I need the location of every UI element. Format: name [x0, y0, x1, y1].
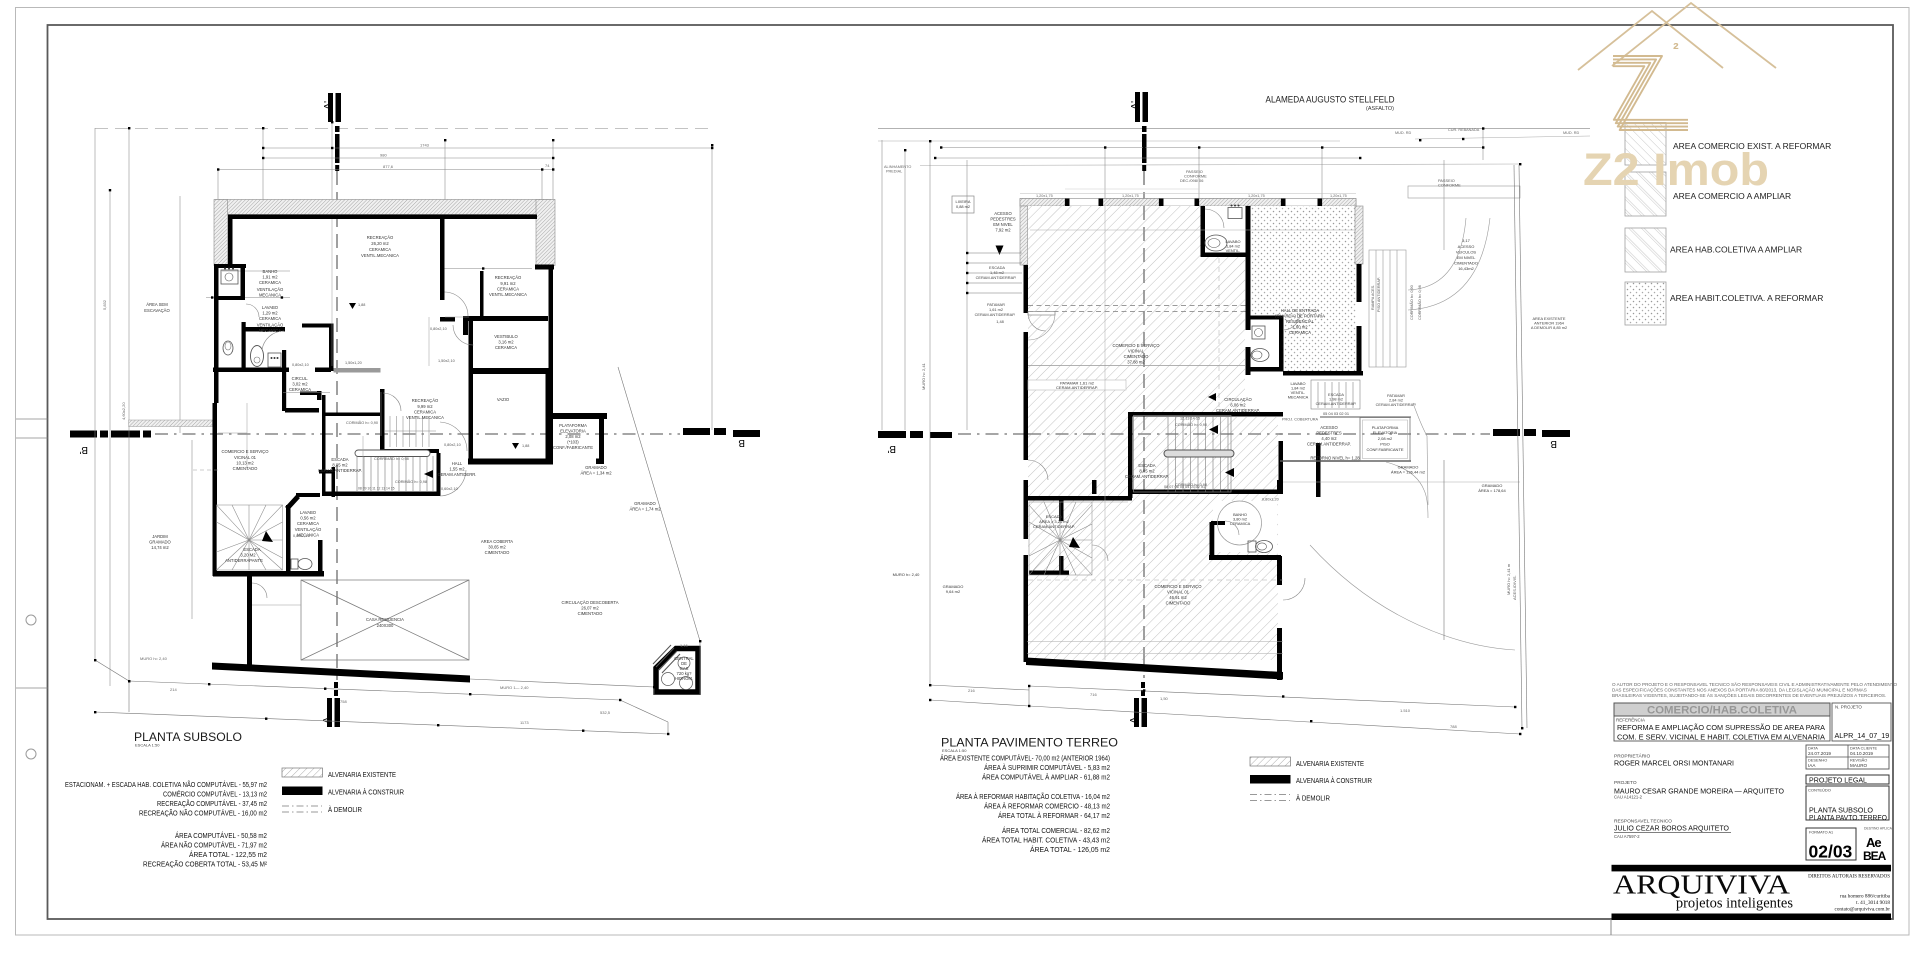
svg-text:B': B'	[887, 443, 896, 454]
svg-text:VENTIL.MECANICA: VENTIL.MECANICA	[406, 415, 444, 420]
svg-text:Z2 Imob: Z2 Imob	[1583, 144, 1769, 195]
svg-text:HIDROM.: HIDROM.	[675, 676, 693, 681]
svg-text:1,88: 1,88	[358, 303, 365, 307]
svg-text:0,56 m2: 0,56 m2	[300, 516, 316, 521]
svg-text:À DEMOLIR: À DEMOLIR	[328, 805, 362, 814]
svg-text:ALVENARIA À CONSTRUIR: ALVENARIA À CONSTRUIR	[328, 788, 404, 797]
svg-text:VENTIL.: VENTIL.	[1226, 248, 1241, 253]
svg-text:REVISÃO: REVISÃO	[1850, 758, 1867, 763]
svg-text:CIMENTADO: CIMENTADO	[485, 550, 511, 555]
svg-text:ACESSO: ACESSO	[994, 211, 1012, 216]
svg-text:980: 980	[380, 153, 387, 158]
svg-text:GRAMADO: GRAMADO	[634, 501, 656, 506]
svg-text:26,07 m2: 26,07 m2	[581, 606, 599, 611]
svg-text:JULIO CEZAR BOROS ARQUITETO: JULIO CEZAR BOROS ARQUITETO	[1614, 824, 1729, 833]
svg-text:CIRCULAÇÃO: CIRCULAÇÃO	[1224, 397, 1252, 402]
svg-text:CERAM.ANTIDERRAP.: CERAM.ANTIDERRAP.	[1033, 524, 1075, 529]
svg-text:1,50x1,20: 1,50x1,20	[345, 361, 362, 365]
svg-text:ESCAVAÇÃO: ESCAVAÇÃO	[144, 308, 170, 313]
svg-text:1,91 m2: 1,91 m2	[262, 275, 278, 280]
svg-text:MURO h= 2,40: MURO h= 2,40	[140, 656, 168, 661]
svg-text:RECREAÇÃO: RECREAÇÃO	[367, 235, 394, 240]
svg-text:PISO ANTIDERRAP.: PISO ANTIDERRAP.	[1377, 277, 1381, 312]
svg-text:CERAM.ANTIDERRAP.: CERAM.ANTIDERRAP.	[1216, 408, 1260, 413]
svg-text:MECANICA: MECANICA	[259, 293, 281, 298]
svg-text:CERAM.ANTIDERRAP.: CERAM.ANTIDERRAP.	[1307, 442, 1351, 447]
svg-text:À DEMOLIR: À DEMOLIR	[1296, 794, 1330, 803]
svg-text:ÁREA À REFORMAR HABITAÇÃO COLE: ÁREA À REFORMAR HABITAÇÃO COLETIVA - 16,…	[956, 792, 1110, 801]
svg-text:CERAMICA: CERAMICA	[259, 280, 281, 285]
svg-text:1,20x1,75: 1,20x1,75	[1036, 194, 1053, 198]
svg-text:RECREAÇÃO NÃO COMPUTÁVEL - 16,: RECREAÇÃO NÃO COMPUTÁVEL - 16,00 m2	[139, 809, 267, 818]
svg-text:ESCADA: ESCADA	[243, 547, 260, 552]
svg-text:ALVENARIA EXISTENTE: ALVENARIA EXISTENTE	[1296, 761, 1364, 768]
svg-text:788: 788	[1450, 724, 1457, 729]
svg-text:AREA COMERCIO A AMPLIAR: AREA COMERCIO A AMPLIAR	[1673, 191, 1791, 201]
svg-text:0,60x2,10: 0,60x2,10	[441, 487, 458, 491]
svg-text:CONF.FABRICANTE: CONF.FABRICANTE	[1366, 447, 1403, 452]
svg-text:PLANTA PAVTO.TERREO: PLANTA PAVTO.TERREO	[1809, 813, 1887, 822]
svg-text:CONFORME: CONFORME	[1438, 183, 1461, 188]
svg-text:rua homero 886/curitiba: rua homero 886/curitiba	[1840, 894, 1891, 900]
svg-text:REFERÊNCIA: REFERÊNCIA	[1616, 716, 1645, 723]
svg-text:PLATAFORMA: PLATAFORMA	[559, 423, 587, 428]
svg-text:RESIDENCIAL: RESIDENCIAL	[1286, 319, 1315, 324]
svg-text:JARDIM: JARDIM	[152, 534, 168, 539]
svg-text:8,05 m2: 8,05 m2	[1139, 469, 1155, 474]
svg-text:12 13 14 15: 12 13 14 15	[1180, 417, 1200, 421]
svg-text:CERAM.ANTIDERRAP.: CERAM.ANTIDERRAP.	[976, 275, 1017, 280]
svg-text:t. 41_3014 9018: t. 41_3014 9018	[1856, 900, 1890, 906]
svg-text:1173: 1173	[520, 720, 529, 725]
svg-text:VENTILAÇÃO: VENTILAÇÃO	[295, 527, 322, 532]
svg-text:GRAMADO: GRAMADO	[585, 465, 607, 470]
svg-text:COMERCIO E SERVIÇO: COMERCIO E SERVIÇO	[222, 449, 270, 454]
svg-text:ESCADA: ESCADA	[331, 457, 348, 462]
svg-text:CORIMÃO h= 0,90: CORIMÃO h= 0,90	[1175, 422, 1207, 427]
svg-text:PLANTA PAVIMENTO TERREO: PLANTA PAVIMENTO TERREO	[941, 736, 1118, 750]
svg-text:ALINHAMENTO: ALINHAMENTO	[884, 165, 911, 169]
svg-text:DIREITOS AUTORAIS RESERVADOS: DIREITOS AUTORAIS RESERVADOS	[1808, 875, 1890, 880]
svg-text:IAA: IAA	[1808, 763, 1816, 768]
svg-text:2,08 m2: 2,08 m2	[1378, 436, 1393, 441]
svg-text:AREA HAB.COLETIVA A AMPLIAR: AREA HAB.COLETIVA A AMPLIAR	[1670, 245, 1802, 255]
svg-text:PROJ. COBERTURA: PROJ. COBERTURA	[1282, 418, 1318, 422]
svg-text:VICINAL 01: VICINAL 01	[234, 455, 257, 460]
svg-text:CERAM.ANTIDERR.: CERAM.ANTIDERR.	[438, 472, 477, 477]
svg-text:DESTINO APLICA: DESTINO APLICA	[1864, 827, 1893, 831]
svg-text:ELEVATORIA: ELEVATORIA	[560, 429, 586, 434]
svg-text:ÁREA SEM: ÁREA SEM	[146, 302, 168, 307]
svg-text:ESCADA: ESCADA	[1138, 463, 1155, 468]
svg-text:ÁREA EXISTENTE COMPUTÁVEL- 70,: ÁREA EXISTENTE COMPUTÁVEL- 70,00 m2 (ANT…	[940, 754, 1110, 763]
svg-text:VAZIO: VAZIO	[497, 397, 510, 402]
svg-text:CERAMICA: CERAMICA	[259, 316, 281, 321]
svg-text:CORIMÃO h= 0,90: CORIMÃO h= 0,90	[346, 420, 378, 425]
svg-text:1,50: 1,50	[1160, 696, 1169, 701]
svg-text:532,5: 532,5	[600, 710, 611, 715]
svg-text:CUR. REBANADA: CUR. REBANADA	[1448, 128, 1480, 132]
svg-text:CERAMICA: CERAMICA	[495, 345, 517, 350]
svg-text:AREA COMERCIO EXIST. A REFORMA: AREA COMERCIO EXIST. A REFORMAR	[1673, 141, 1831, 151]
svg-text:30,65 m2: 30,65 m2	[488, 545, 506, 550]
svg-text:26,20 m2: 26,20 m2	[371, 241, 389, 246]
svg-text:MECANICA: MECANICA	[259, 328, 281, 333]
svg-text:877,6: 877,6	[383, 164, 394, 169]
svg-text:2,08 m2: 2,08 m2	[565, 434, 581, 439]
svg-text:CIMENTADO: CIMENTADO	[1454, 261, 1478, 266]
svg-text:VENTIL.MECANICA: VENTIL.MECANICA	[489, 292, 527, 297]
svg-text:24.07.2019: 24.07.2019	[1808, 751, 1831, 756]
svg-text:0,80x2,10: 0,80x2,10	[293, 534, 310, 538]
svg-text:DAS ESPECIFICAÇÕES CONSTANTES: DAS ESPECIFICAÇÕES CONSTANTES NOS ANEXOS…	[1612, 687, 1867, 693]
svg-text:PEDESTRES: PEDESTRES	[990, 217, 1016, 222]
svg-text:AREA HABIT.COLETIVA. A REFORMA: AREA HABIT.COLETIVA. A REFORMAR	[1670, 293, 1823, 303]
svg-text:PREDIAL: PREDIAL	[886, 170, 902, 174]
svg-text:A: A	[1129, 717, 1140, 724]
svg-text:VESTIBULO: VESTIBULO	[494, 334, 518, 339]
svg-text:VENTIL.MECANICA: VENTIL.MECANICA	[361, 253, 399, 258]
svg-text:PISO: PISO	[1380, 442, 1390, 447]
svg-text:0,80x2,10: 0,80x2,10	[292, 363, 309, 367]
svg-text:GRAMADO: GRAMADO	[149, 540, 171, 545]
svg-text:758: 758	[340, 699, 347, 704]
svg-text:ÁREA = 1,34 m2: ÁREA = 1,34 m2	[580, 471, 612, 476]
svg-text:CIMENTADO: CIMENTADO	[578, 611, 604, 616]
svg-text:BEA: BEA	[1863, 849, 1887, 863]
svg-text:ÁREA TOTAL À REFORMAR - 64,17: ÁREA TOTAL À REFORMAR - 64,17 m2	[998, 811, 1110, 820]
svg-text:O AUTOR DO PROJETO E O RESPONS: O AUTOR DO PROJETO E O RESPONSAVEL TECNI…	[1612, 681, 1897, 687]
svg-text:ÁREA = 178,64: ÁREA = 178,64	[1478, 488, 1506, 493]
svg-text:B': B'	[79, 444, 88, 455]
svg-text:CERAMICA: CERAMICA	[1289, 330, 1311, 335]
svg-text:0,80x1,20: 0,80x1,20	[1262, 498, 1279, 502]
svg-text:A': A'	[323, 101, 334, 110]
svg-text:HALL DE ENTRADA: HALL DE ENTRADA	[1281, 308, 1320, 313]
svg-text:CAU A14121-2: CAU A14121-2	[1614, 795, 1643, 800]
svg-text:14,74 m2: 14,74 m2	[151, 545, 169, 550]
svg-text:RAMPA ACES.: RAMPA ACES.	[1371, 285, 1375, 310]
svg-text:5,832: 5,832	[102, 299, 107, 310]
svg-text:3,16 m2: 3,16 m2	[498, 340, 514, 345]
svg-text:VICINAL: VICINAL	[1128, 349, 1145, 354]
svg-text:ESCALA 1:50: ESCALA 1:50	[942, 748, 967, 753]
svg-text:REFORMA E AMPLIAÇÃO COM SUPRES: REFORMA E AMPLIAÇÃO COM SUPRESSÃO DE ARE…	[1617, 723, 1825, 732]
svg-text:DATA: DATA	[1808, 746, 1818, 751]
svg-text:RECREAÇÃO COMPUTÁVEL - 37,45 m: RECREAÇÃO COMPUTÁVEL - 37,45 m2	[157, 799, 267, 808]
svg-text:COMÉRCIO COMPUTÁVEL - 13,13 m2: COMÉRCIO COMPUTÁVEL - 13,13 m2	[163, 790, 267, 799]
svg-text:1,50x2,10: 1,50x2,10	[438, 359, 455, 363]
svg-text:9,91 m2: 9,91 m2	[500, 281, 516, 286]
svg-text:contato@arquiviva.com.br: contato@arquiviva.com.br	[1835, 907, 1891, 913]
svg-text:9,99 m2: 9,99 m2	[417, 404, 433, 409]
svg-text:MURO h= 2,40: MURO h= 2,40	[893, 572, 921, 577]
svg-text:1,55 m2: 1,55 m2	[449, 467, 465, 472]
svg-text:RECREAÇÃO: RECREAÇÃO	[495, 275, 522, 280]
svg-text:CERAM.ANTIDERRAP.: CERAM.ANTIDERRAP.	[1316, 401, 1357, 406]
svg-text:1,88: 1,88	[522, 444, 529, 448]
svg-text:CONF./FABRICANTE: CONF./FABRICANTE	[553, 445, 593, 450]
svg-text:EM NIVEL: EM NIVEL	[1457, 255, 1476, 260]
svg-text:CERAMICA: CERAMICA	[497, 287, 519, 292]
svg-text:AREA COBERTA: AREA COBERTA	[481, 539, 513, 544]
svg-text:ALVENARIA EXISTENTE: ALVENARIA EXISTENTE	[328, 772, 396, 779]
svg-text:ÁREA TOTAL - 122,55 m2: ÁREA TOTAL - 122,55 m2	[189, 850, 267, 859]
svg-text:04.10.2019: 04.10.2019	[1850, 751, 1873, 756]
svg-text:MURO h= 2,41: MURO h= 2,41	[921, 362, 926, 390]
svg-text:COMERCIO E SERVIÇO: COMERCIO E SERVIÇO	[1155, 584, 1203, 589]
svg-text:COM. E SERV. VICINAL E HABIT.: COM. E SERV. VICINAL E HABIT. COLETIVA E…	[1617, 733, 1825, 742]
svg-text:8,05 m2: 8,05 m2	[332, 463, 348, 468]
svg-text:B: B	[738, 437, 745, 448]
svg-text:LAVABO: LAVABO	[262, 305, 279, 310]
svg-text:VICINAL 01: VICINAL 01	[1167, 590, 1190, 595]
svg-text:ACESSO: ACESSO	[1320, 425, 1338, 430]
svg-text:CERAMICA: CERAMICA	[289, 387, 311, 392]
svg-text:02/03: 02/03	[1809, 842, 1853, 862]
svg-text:08 09 10 11 12 13 14 15: 08 09 10 11 12 13 14 15	[358, 487, 395, 491]
svg-text:ÁREA COMPUTÁVEL - 50,58 m2: ÁREA COMPUTÁVEL - 50,58 m2	[175, 831, 267, 840]
svg-text:CERAM.ANTIDERRAP.: CERAM.ANTIDERRAP.	[1376, 402, 1417, 407]
svg-text:ÁREA TOTAL - 126,05 m2: ÁREA TOTAL - 126,05 m2	[1030, 845, 1110, 854]
svg-text:MUD. RD: MUD. RD	[1563, 131, 1579, 135]
svg-text:6,06 m2: 6,06 m2	[1230, 403, 1246, 408]
svg-text:BRASILEIRAS VIGENTES, SUJEITAN: BRASILEIRAS VIGENTES, SUJEITANDO-SE ÀS S…	[1612, 692, 1886, 698]
svg-text:PROJETO: PROJETO	[1614, 780, 1637, 786]
svg-text:CORRIMÃO h= 0,98: CORRIMÃO h= 0,98	[374, 456, 409, 461]
svg-text:ALAMEDA AUGUSTO STELLFELD: ALAMEDA AUGUSTO STELLFELD	[1266, 94, 1395, 105]
svg-text:CERAMICA: CERAMICA	[414, 410, 436, 415]
svg-text:216: 216	[968, 688, 975, 693]
svg-text:4,40 m2: 4,40 m2	[1321, 436, 1337, 441]
svg-text:ÁREA TOTAL COMERCIAL - 82,62 m: ÁREA TOTAL COMERCIAL - 82,62 m2	[1002, 826, 1110, 835]
svg-text:CERAMICA: CERAMICA	[297, 521, 319, 526]
svg-text:CAU A7597-2: CAU A7597-2	[1614, 834, 1640, 839]
svg-text:3,20 M2: 3,20 M2	[240, 553, 256, 558]
svg-text:RECREAÇÃO COBERTA TOTAL - 53,4: RECREAÇÃO COBERTA TOTAL - 53,45 M²	[143, 860, 268, 869]
svg-text:CIRCULAÇÃO DESCOBERTA: CIRCULAÇÃO DESCOBERTA	[561, 600, 618, 605]
svg-text:(*103): (*103)	[567, 440, 579, 445]
svg-text:CASA RESIDENCIA: CASA RESIDENCIA	[366, 617, 404, 622]
svg-text:1,16: 1,16	[680, 643, 689, 648]
svg-text:LAVABO: LAVABO	[300, 510, 317, 515]
svg-text:ÁREA TOTAL HABIT. COLETIVA - 4: ÁREA TOTAL HABIT. COLETIVA - 43,43 m2	[982, 836, 1110, 845]
svg-text:CORRIMÃO h= 0,90: CORRIMÃO h= 0,90	[1409, 285, 1414, 320]
svg-text:240X300: 240X300	[377, 623, 394, 628]
svg-text:ÁREA À SUPRIMIR COMPUTÁVEL - 5: ÁREA À SUPRIMIR COMPUTÁVEL - 5,83 m2	[984, 763, 1110, 772]
svg-text:A DEMOLIR 8,85 m2: A DEMOLIR 8,85 m2	[1531, 325, 1567, 330]
svg-text:ALVENARIA À CONSTRUIR: ALVENARIA À CONSTRUIR	[1296, 776, 1372, 785]
svg-text:0,80x2,10: 0,80x2,10	[444, 443, 461, 447]
svg-text:1,20x1,75: 1,20x1,75	[1330, 194, 1347, 198]
svg-text:CERAM.ANTIDERRAP.: CERAM.ANTIDERRAP.	[1056, 385, 1098, 390]
svg-text:MUD. RD: MUD. RD	[1395, 131, 1411, 135]
svg-text:COMERCIO/HAB.COLETIVA: COMERCIO/HAB.COLETIVA	[1647, 705, 1797, 717]
svg-text:74: 74	[545, 163, 550, 168]
svg-text:ÁREA À REFORMAR COMERCIO - 48: ÁREA À REFORMAR COMERCIO - 48,13 m2	[984, 802, 1110, 811]
svg-text:05 04 03 02 01: 05 04 03 02 01	[1323, 411, 1349, 416]
svg-text:Ae: Ae	[1866, 835, 1881, 850]
svg-text:1.510: 1.510	[1400, 708, 1411, 713]
svg-text:VENTILAÇÃO: VENTILAÇÃO	[257, 323, 284, 328]
svg-text:B: B	[1550, 438, 1557, 449]
svg-text:CIMENTADO: CIMENTADO	[1166, 601, 1192, 606]
svg-text:1,48: 1,48	[996, 319, 1004, 324]
svg-text:CERAM.ANTIDERRAP.: CERAM.ANTIDERRAP.	[318, 468, 362, 473]
svg-text:CIRCUL.: CIRCUL.	[292, 376, 309, 381]
svg-text:CORIMÃO h= 0,98: CORIMÃO h= 0,98	[395, 479, 427, 484]
svg-text:EM NIVEL: EM NIVEL	[993, 222, 1013, 227]
svg-text:9,64 m2: 9,64 m2	[946, 589, 961, 594]
svg-text:CORRIMÃO h= 0,98: CORRIMÃO h= 0,98	[1417, 285, 1422, 320]
svg-text:CIMENTADO: CIMENTADO	[1124, 354, 1150, 359]
svg-text:PROJETO LEGAL: PROJETO LEGAL	[1809, 777, 1867, 784]
svg-text:VENTILAÇÃO: VENTILAÇÃO	[257, 287, 284, 292]
svg-text:MAURO: MAURO	[1850, 763, 1868, 768]
svg-text:ESTACIONAM. + ESCADA HAB. COLE: ESTACIONAM. + ESCADA HAB. COLETIVA NÃO C…	[65, 780, 267, 789]
svg-text:projetos inteligentes: projetos inteligentes	[1676, 896, 1794, 912]
svg-text:46,91 m2: 46,91 m2	[1169, 595, 1187, 600]
svg-text:N. PROJETO: N. PROJETO	[1835, 705, 1862, 710]
svg-text:COMERCIO E SERVIÇO: COMERCIO E SERVIÇO	[1113, 343, 1161, 348]
svg-text:ÁREA = 1,74 m2: ÁREA = 1,74 m2	[629, 507, 661, 512]
svg-text:MURO h= 2,41 m: MURO h= 2,41 m	[1506, 563, 1511, 595]
svg-text:ELEVATORIA: ELEVATORIA	[1373, 430, 1398, 435]
svg-text:1,20x1,75: 1,20x1,75	[1248, 194, 1265, 198]
svg-text:0,80x2,10: 0,80x2,10	[430, 327, 447, 331]
svg-text:CERAM.ANTIDERRAP.: CERAM.ANTIDERRAP.	[975, 312, 1016, 317]
svg-text:ALPR_14_07_19: ALPR_14_07_19	[1835, 731, 1890, 740]
svg-text:FORMATO A1: FORMATO A1	[1809, 831, 1833, 835]
svg-text:RECREAÇÃO: RECREAÇÃO	[412, 398, 439, 403]
svg-text:1743: 1743	[420, 143, 430, 148]
svg-text:MURO 1— 2,40: MURO 1— 2,40	[500, 685, 529, 690]
svg-text:ÁREA COMPUTÁVEL À AMPLIAR - 61: ÁREA COMPUTÁVEL À AMPLIAR - 61,88 m2	[982, 773, 1110, 782]
svg-text:ANTIDERRAPANTE: ANTIDERRAPANTE	[225, 558, 263, 563]
svg-text:CERAM.ANTIDERRAP.: CERAM.ANTIDERRAP.	[1125, 474, 1169, 479]
svg-text:CERAMICA: CERAMICA	[369, 247, 391, 252]
svg-text:CONTEÚDO: CONTEÚDO	[1808, 788, 1831, 793]
svg-text:A: A	[322, 717, 333, 724]
svg-text:0,88 m2: 0,88 m2	[956, 204, 970, 209]
svg-text:A': A'	[1130, 101, 1141, 110]
svg-text:716: 716	[1090, 692, 1097, 697]
svg-text:ROGER MARCEL ORSI MONTANARI: ROGER MARCEL ORSI MONTANARI	[1614, 759, 1734, 768]
svg-text:08 07 06 05 04 03 02 01: 08 07 06 05 04 03 02 01	[1164, 485, 1205, 489]
svg-text:ESCALA 1:50: ESCALA 1:50	[135, 743, 160, 748]
svg-text:DESENHO: DESENHO	[1808, 758, 1827, 763]
svg-text:HALL: HALL	[452, 461, 463, 466]
svg-text:BANHO: BANHO	[263, 269, 279, 274]
svg-text:DEC./098/ 06: DEC./098/ 06	[1180, 178, 1203, 183]
svg-text:10,13 m2: 10,13 m2	[236, 461, 254, 466]
svg-text:ACES./DIVIS.: ACES./DIVIS.	[1512, 575, 1517, 600]
svg-text:3,17: 3,17	[1462, 238, 1471, 243]
svg-text:37,88 m2: 37,88 m2	[1127, 360, 1145, 365]
svg-text:PEDESTRES: PEDESTRES	[1316, 431, 1342, 436]
svg-text:²: ²	[1673, 40, 1679, 59]
svg-text:CIMENTADO: CIMENTADO	[233, 466, 259, 471]
svg-text:RETORNO NIVEL h= 1,28: RETORNO NIVEL h= 1,28	[1310, 456, 1360, 461]
svg-text:MECANICA: MECANICA	[1288, 395, 1309, 400]
svg-text:ÁREA = 136,44 m2: ÁREA = 136,44 m2	[1391, 470, 1426, 475]
svg-text:214: 214	[170, 687, 177, 692]
svg-text:16,43m2: 16,43m2	[1458, 266, 1474, 271]
svg-text:1,20x1,75: 1,20x1,75	[1122, 194, 1139, 198]
svg-text:1,29 m2: 1,29 m2	[262, 311, 278, 316]
svg-text:(ASFALTO): (ASFALTO)	[1366, 106, 1394, 112]
svg-text:DATA CLIENTE: DATA CLIENTE	[1850, 746, 1877, 751]
svg-text:4,60x2,20: 4,60x2,20	[121, 402, 126, 420]
svg-text:3,02 m2: 3,02 m2	[292, 382, 308, 387]
svg-text:ÁREA NÃO COMPUTÁVEL - 71,97 m2: ÁREA NÃO COMPUTÁVEL - 71,97 m2	[161, 841, 267, 850]
svg-text:7,92 m2: 7,92 m2	[995, 228, 1011, 233]
